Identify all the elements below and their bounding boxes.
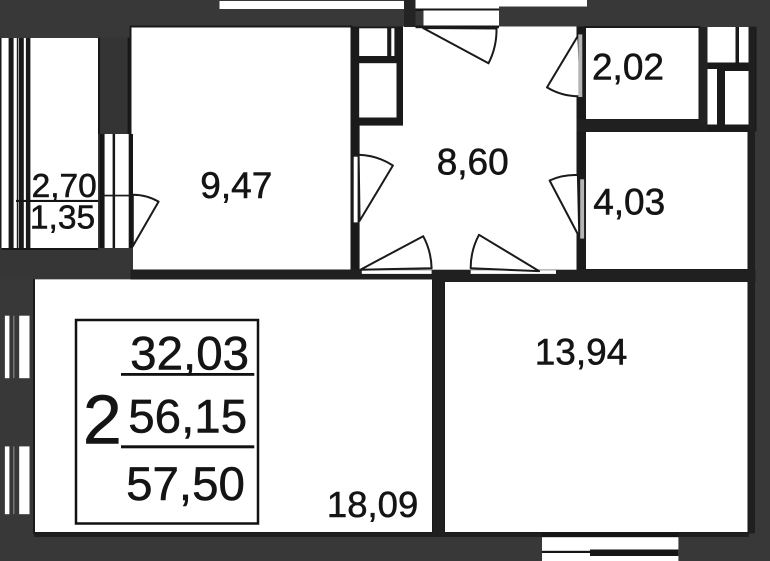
svg-text:1,35: 1,35: [30, 200, 95, 237]
svg-text:57,50: 57,50: [126, 458, 245, 511]
svg-text:18,09: 18,09: [327, 484, 418, 525]
svg-text:8,60: 8,60: [437, 141, 509, 182]
svg-text:2: 2: [83, 380, 122, 458]
svg-text:13,94: 13,94: [535, 332, 628, 373]
svg-text:9,47: 9,47: [200, 165, 272, 206]
svg-text:2,02: 2,02: [592, 47, 664, 88]
svg-text:56,15: 56,15: [128, 390, 247, 443]
svg-text:4,03: 4,03: [593, 181, 665, 222]
svg-text:32,03: 32,03: [130, 327, 249, 380]
